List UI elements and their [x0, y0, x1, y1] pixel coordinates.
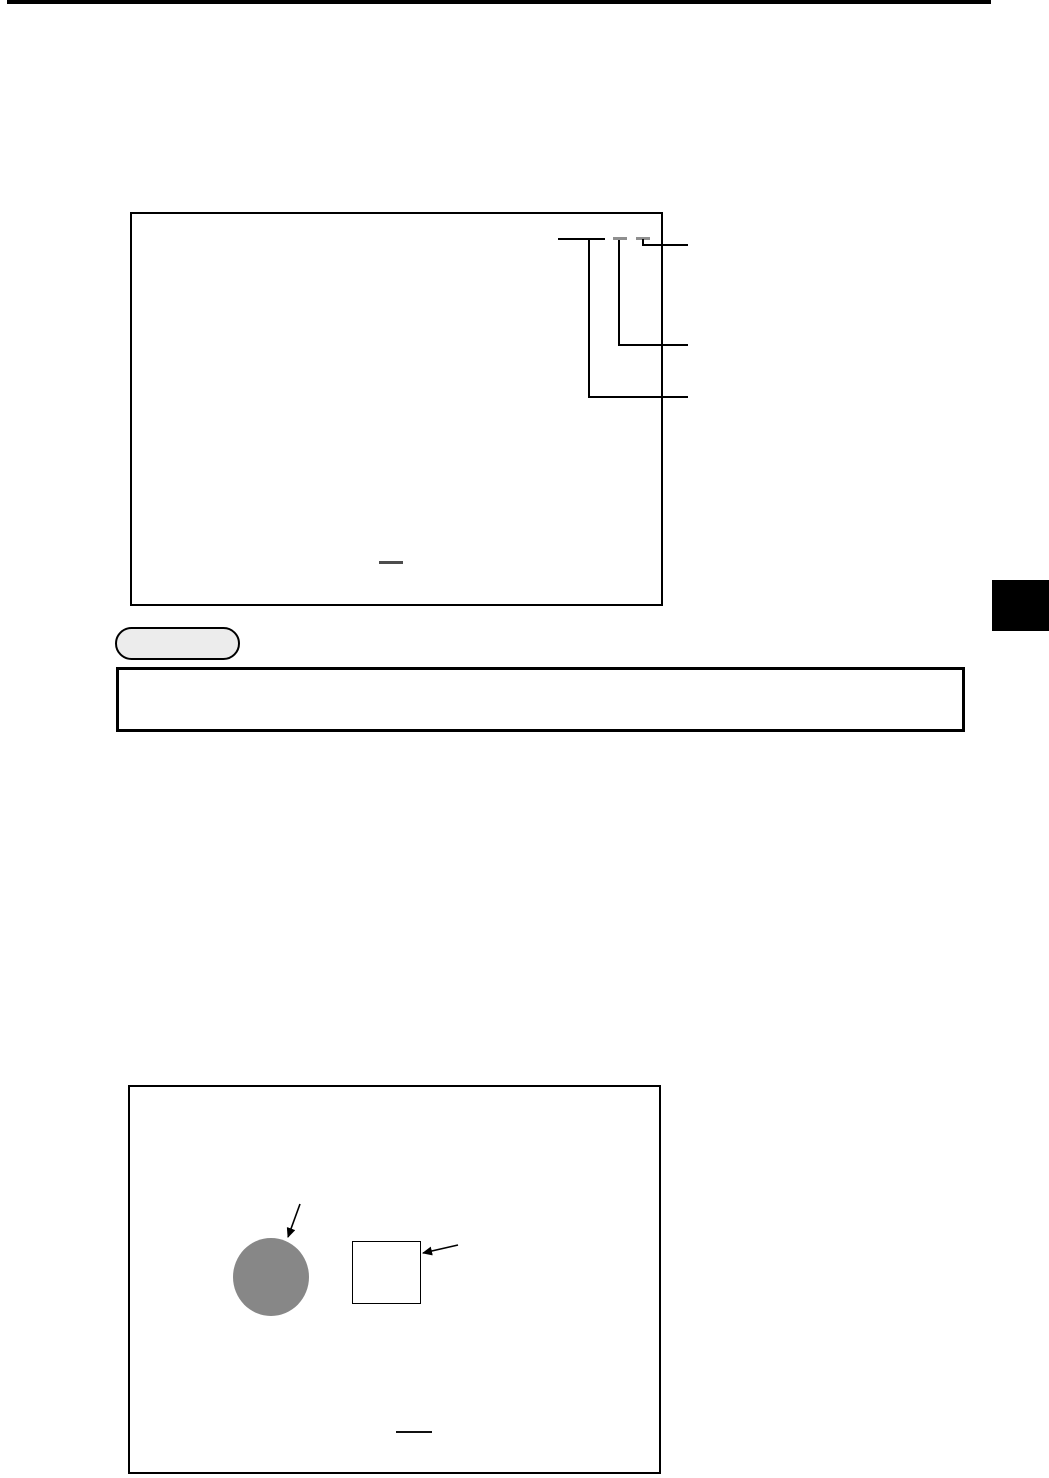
grey-circle-shape — [233, 1238, 309, 1316]
top-figure-frame — [130, 212, 663, 606]
redaction-dash-icon — [613, 237, 627, 240]
small-square-shape — [352, 1241, 421, 1304]
callout-line-c — [588, 240, 590, 398]
figure-small-dash — [396, 1431, 432, 1433]
callout-line-b — [618, 240, 620, 346]
note-pill-label — [115, 627, 240, 660]
note-box — [116, 667, 965, 732]
manual-page — [0, 0, 1049, 1478]
callout-line-a — [642, 244, 688, 246]
label-underline — [558, 238, 605, 240]
screen-small-dash — [379, 561, 403, 564]
callout-line-c — [588, 396, 688, 398]
callout-line-b — [618, 344, 688, 346]
chapter-tab-icon — [992, 580, 1049, 631]
page-top-rule — [7, 0, 991, 4]
